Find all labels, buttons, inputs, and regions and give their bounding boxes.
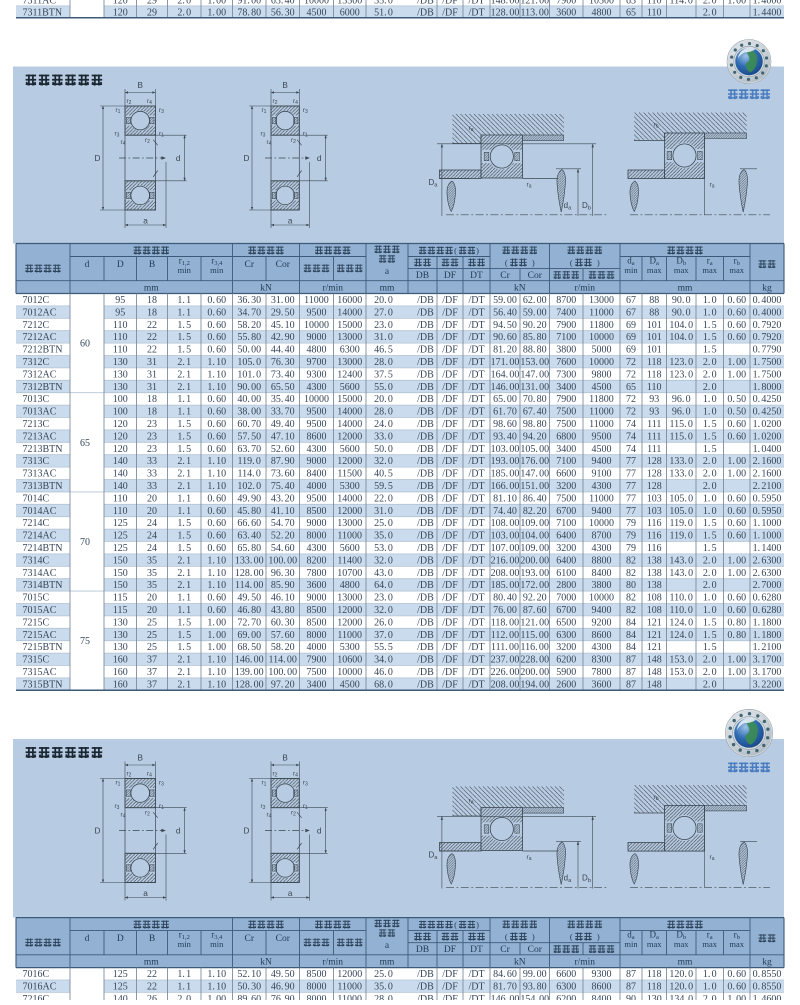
svg-text:6700: 6700 xyxy=(556,506,576,517)
svg-text:/DT: /DT xyxy=(468,543,484,554)
svg-text:(: ( xyxy=(454,245,457,255)
svg-text:100: 100 xyxy=(113,407,128,418)
svg-text:1. 5: 1. 5 xyxy=(177,332,191,343)
svg-text:6800: 6800 xyxy=(556,431,576,442)
svg-text:11800: 11800 xyxy=(589,320,614,331)
svg-text:0. 80: 0. 80 xyxy=(727,617,746,628)
svg-text:/DT: /DT xyxy=(468,518,484,529)
svg-text:1. 10: 1. 10 xyxy=(207,969,226,980)
svg-text:/DB: /DB xyxy=(417,481,434,492)
svg-text:8500: 8500 xyxy=(307,605,327,616)
svg-text:1. 0: 1. 0 xyxy=(703,493,717,504)
svg-text:7213C: 7213C xyxy=(23,419,50,430)
svg-text:9500: 9500 xyxy=(592,431,612,442)
svg-text:123. 0: 123. 0 xyxy=(669,369,693,380)
svg-text:125: 125 xyxy=(113,531,128,542)
svg-text:2. 1: 2. 1 xyxy=(177,456,191,467)
svg-text:67: 67 xyxy=(626,295,636,306)
svg-text:94. 20: 94. 20 xyxy=(523,431,547,442)
svg-text:104. 0: 104. 0 xyxy=(669,320,693,331)
svg-text:68. 50: 68. 50 xyxy=(237,642,261,653)
svg-text:130: 130 xyxy=(113,357,128,368)
svg-text:mm: mm xyxy=(380,284,395,294)
svg-text:2. 0: 2. 0 xyxy=(703,655,717,666)
svg-text:2. 1: 2. 1 xyxy=(177,568,191,579)
svg-text:12000: 12000 xyxy=(337,969,362,980)
svg-text:64. 0: 64. 0 xyxy=(374,580,393,591)
svg-text:r2: r2 xyxy=(145,137,150,145)
svg-text:9400: 9400 xyxy=(592,506,612,517)
svg-text:12000: 12000 xyxy=(337,431,362,442)
svg-text:/DF: /DF xyxy=(442,568,458,579)
svg-text:84: 84 xyxy=(626,630,636,641)
svg-text:108: 108 xyxy=(647,593,662,604)
svg-text:1. 00: 1. 00 xyxy=(727,655,746,666)
svg-text:121. 00: 121. 00 xyxy=(520,0,549,7)
svg-text:54. 70: 54. 70 xyxy=(271,518,295,529)
svg-text:153. 0: 153. 0 xyxy=(669,655,693,666)
svg-text:0. 8550: 0. 8550 xyxy=(753,969,782,980)
svg-text:9500: 9500 xyxy=(307,407,327,418)
svg-text:r4: r4 xyxy=(147,98,152,106)
svg-text:10000: 10000 xyxy=(589,357,614,368)
svg-text:128. 00: 128. 00 xyxy=(235,568,264,579)
svg-text:18: 18 xyxy=(147,307,157,318)
svg-text:185. 00: 185. 00 xyxy=(491,580,520,591)
svg-text:110: 110 xyxy=(113,332,128,343)
svg-text:200. 00: 200. 00 xyxy=(520,667,549,678)
svg-text:9300: 9300 xyxy=(307,369,327,380)
svg-text:/DB: /DB xyxy=(417,0,434,7)
svg-text:3600: 3600 xyxy=(592,679,612,690)
svg-text:208. 00: 208. 00 xyxy=(491,679,520,690)
svg-text:95: 95 xyxy=(115,307,125,318)
svg-text:120: 120 xyxy=(113,444,128,455)
svg-text:33: 33 xyxy=(147,469,157,480)
svg-text:0. 7790: 0. 7790 xyxy=(753,345,782,356)
svg-text:99. 00: 99. 00 xyxy=(523,969,547,980)
svg-text:/DT: /DT xyxy=(468,655,484,666)
svg-text:1. 0: 1. 0 xyxy=(703,969,717,980)
svg-text:140: 140 xyxy=(113,469,128,480)
svg-text:12400: 12400 xyxy=(337,369,362,380)
svg-text:4500: 4500 xyxy=(592,444,612,455)
svg-text:77: 77 xyxy=(626,469,636,480)
svg-text:72: 72 xyxy=(626,394,636,405)
svg-text:56. 40: 56. 40 xyxy=(493,307,517,318)
svg-text:mm: mm xyxy=(144,958,159,968)
svg-text:5000: 5000 xyxy=(592,345,612,356)
svg-text:2. 1: 2. 1 xyxy=(177,469,191,480)
svg-text:r1: r1 xyxy=(303,131,308,139)
svg-text:237. 00: 237. 00 xyxy=(491,655,520,666)
svg-text:/DT: /DT xyxy=(468,593,484,604)
svg-text:/DF: /DF xyxy=(442,655,458,666)
svg-text:4500: 4500 xyxy=(340,679,360,690)
svg-text:kg: kg xyxy=(762,284,772,294)
svg-text:D: D xyxy=(244,827,250,836)
svg-text:/DB: /DB xyxy=(417,580,434,591)
svg-text:118: 118 xyxy=(647,981,662,992)
svg-text:116: 116 xyxy=(647,531,662,542)
svg-text:50. 30: 50. 30 xyxy=(237,981,261,992)
svg-text:93. 80: 93. 80 xyxy=(523,981,547,992)
svg-text:0. 50: 0. 50 xyxy=(727,394,746,405)
svg-text:1. 4600: 1. 4600 xyxy=(753,994,782,1000)
svg-text:82: 82 xyxy=(626,605,636,616)
svg-text:216. 00: 216. 00 xyxy=(491,555,520,566)
svg-text:/DB: /DB xyxy=(417,407,434,418)
svg-text:a: a xyxy=(143,889,148,898)
svg-text:/DF: /DF xyxy=(442,407,458,418)
svg-text:/DB: /DB xyxy=(417,667,434,678)
svg-text:25. 0: 25. 0 xyxy=(374,518,393,529)
svg-text:111: 111 xyxy=(647,419,661,430)
svg-text:93. 40: 93. 40 xyxy=(493,431,517,442)
svg-text:50. 00: 50. 00 xyxy=(237,345,261,356)
svg-text:110: 110 xyxy=(113,345,128,356)
svg-text:4800: 4800 xyxy=(307,345,327,356)
svg-text:147. 00: 147. 00 xyxy=(520,369,549,380)
svg-text:115. 00: 115. 00 xyxy=(521,630,549,641)
svg-text:7015AC: 7015AC xyxy=(23,605,57,616)
svg-text:r3: r3 xyxy=(261,131,266,139)
svg-text:8700: 8700 xyxy=(592,531,612,542)
svg-text:35. 0: 35. 0 xyxy=(374,531,393,542)
svg-text:32. 0: 32. 0 xyxy=(374,605,393,616)
svg-text:1. 5: 1. 5 xyxy=(177,617,191,628)
svg-text:d: d xyxy=(176,827,181,836)
svg-text:1. 0: 1. 0 xyxy=(703,981,717,992)
svg-text:1. 5: 1. 5 xyxy=(177,444,191,455)
svg-text:1. 8000: 1. 8000 xyxy=(753,382,782,393)
svg-text:143. 0: 143. 0 xyxy=(669,555,693,566)
svg-text:2. 1600: 2. 1600 xyxy=(753,456,782,467)
svg-text:r3: r3 xyxy=(115,803,120,811)
svg-text:61. 70: 61. 70 xyxy=(493,407,517,418)
svg-text:max: max xyxy=(729,265,744,275)
svg-text:87: 87 xyxy=(626,981,636,992)
svg-text:7012C: 7012C xyxy=(23,295,50,306)
svg-text:35: 35 xyxy=(147,568,157,579)
svg-text:9000: 9000 xyxy=(307,332,327,343)
svg-text:min: min xyxy=(210,939,224,949)
svg-text:12000: 12000 xyxy=(337,605,362,616)
svg-text:1. 5: 1. 5 xyxy=(703,332,717,343)
svg-text:24: 24 xyxy=(147,531,157,542)
svg-text:/DT: /DT xyxy=(468,444,484,455)
svg-text:63. 40: 63. 40 xyxy=(271,0,295,7)
svg-text:84. 60: 84. 60 xyxy=(493,969,517,980)
svg-text:2. 1: 2. 1 xyxy=(177,667,191,678)
svg-text:1. 00: 1. 00 xyxy=(207,0,226,7)
svg-text:3. 1700: 3. 1700 xyxy=(753,667,782,678)
svg-text:18: 18 xyxy=(147,407,157,418)
svg-text:7311BTN: 7311BTN xyxy=(23,7,63,18)
svg-text:0. 5950: 0. 5950 xyxy=(753,506,782,517)
svg-text:1. 5: 1. 5 xyxy=(177,543,191,554)
svg-text:90. 0: 90. 0 xyxy=(672,295,691,306)
svg-text:115. 0: 115. 0 xyxy=(670,419,693,430)
svg-text:mm: mm xyxy=(678,958,693,968)
svg-text:6600: 6600 xyxy=(556,969,576,980)
svg-text:/DF: /DF xyxy=(442,969,458,980)
svg-text:23. 0: 23. 0 xyxy=(374,320,393,331)
svg-text:171. 00: 171. 00 xyxy=(491,357,520,368)
svg-text:0. 60: 0. 60 xyxy=(207,593,226,604)
svg-text:154. 00: 154. 00 xyxy=(520,994,549,1000)
svg-text:108. 00: 108. 00 xyxy=(491,518,520,529)
svg-text:1. 00: 1. 00 xyxy=(207,630,226,641)
svg-text:18: 18 xyxy=(147,295,157,306)
svg-text:94. 50: 94. 50 xyxy=(493,320,517,331)
svg-text:140: 140 xyxy=(113,456,128,467)
svg-text:/DB: /DB xyxy=(417,642,434,653)
svg-text:20: 20 xyxy=(147,593,157,604)
svg-text:6000: 6000 xyxy=(340,7,360,18)
svg-text:/DB: /DB xyxy=(417,493,434,504)
svg-text:2. 0: 2. 0 xyxy=(703,469,717,480)
svg-text:28. 0: 28. 0 xyxy=(374,407,393,418)
svg-text:/DT: /DT xyxy=(468,994,484,1000)
svg-text:1. 4000: 1. 4000 xyxy=(753,0,782,7)
svg-text:1. 10: 1. 10 xyxy=(207,357,226,368)
svg-text:8200: 8200 xyxy=(307,555,327,566)
svg-text:118: 118 xyxy=(647,357,662,368)
svg-text:DB: DB xyxy=(416,945,429,955)
svg-text:1. 10: 1. 10 xyxy=(207,369,226,380)
svg-text:2. 0: 2. 0 xyxy=(703,357,717,368)
svg-text:11000: 11000 xyxy=(337,994,362,1000)
svg-text:35: 35 xyxy=(147,555,157,566)
svg-text:128. 00: 128. 00 xyxy=(491,7,520,18)
svg-text:28. 0: 28. 0 xyxy=(374,994,393,1000)
svg-text:1. 00: 1. 00 xyxy=(727,994,746,1000)
svg-text:65: 65 xyxy=(80,438,90,449)
svg-text:/DT: /DT xyxy=(468,679,484,690)
svg-text:rb: rb xyxy=(654,794,659,802)
svg-text:0. 60: 0. 60 xyxy=(207,531,226,542)
svg-text:/DF: /DF xyxy=(442,506,458,517)
svg-text:111: 111 xyxy=(647,431,661,442)
svg-text:107. 00: 107. 00 xyxy=(491,543,520,554)
svg-text:1. 5: 1. 5 xyxy=(703,630,717,641)
svg-text:12000: 12000 xyxy=(337,506,362,517)
svg-text:82: 82 xyxy=(626,568,636,579)
svg-text:5600: 5600 xyxy=(340,382,360,393)
svg-text:7314BTN: 7314BTN xyxy=(23,580,63,591)
svg-text:7016C: 7016C xyxy=(23,969,50,980)
svg-text:8300: 8300 xyxy=(592,655,612,666)
svg-text:46. 90: 46. 90 xyxy=(271,981,295,992)
svg-text:7313C: 7313C xyxy=(23,456,50,467)
svg-text:/DB: /DB xyxy=(417,593,434,604)
svg-text:7800: 7800 xyxy=(307,568,327,579)
svg-text:r1: r1 xyxy=(303,803,308,811)
svg-text:80: 80 xyxy=(626,580,636,591)
svg-text:/DT: /DT xyxy=(468,369,484,380)
svg-text:min: min xyxy=(178,265,192,275)
svg-text:65. 80: 65. 80 xyxy=(237,543,261,554)
svg-text:114. 0: 114. 0 xyxy=(670,0,693,7)
svg-text:r4: r4 xyxy=(267,139,272,147)
svg-text:7216C: 7216C xyxy=(23,994,50,1000)
svg-text:87: 87 xyxy=(626,667,636,678)
svg-text:0. 60: 0. 60 xyxy=(207,506,226,517)
svg-text:/DF: /DF xyxy=(442,580,458,591)
svg-text:85. 80: 85. 80 xyxy=(523,332,547,343)
svg-text:2. 1: 2. 1 xyxy=(177,382,191,393)
svg-text:88: 88 xyxy=(649,295,659,306)
svg-text:/DF: /DF xyxy=(442,456,458,467)
svg-text:148: 148 xyxy=(647,655,662,666)
svg-text:/DT: /DT xyxy=(468,357,484,368)
svg-text:5600: 5600 xyxy=(340,444,360,455)
svg-text:7014AC: 7014AC xyxy=(23,506,57,517)
svg-text:2. 0: 2. 0 xyxy=(703,555,717,566)
svg-text:1. 1: 1. 1 xyxy=(177,394,191,405)
svg-text:mm: mm xyxy=(678,284,693,294)
svg-text:r2: r2 xyxy=(273,771,278,779)
svg-text:118. 00: 118. 00 xyxy=(491,617,519,628)
svg-text:52. 60: 52. 60 xyxy=(271,444,295,455)
svg-text:146. 00: 146. 00 xyxy=(491,994,520,1000)
svg-text:r3: r3 xyxy=(159,780,164,788)
svg-text:55. 80: 55. 80 xyxy=(237,332,261,343)
svg-text:6300: 6300 xyxy=(556,630,576,641)
svg-text:1. 10: 1. 10 xyxy=(207,667,226,678)
svg-text:8400: 8400 xyxy=(307,469,327,480)
svg-text:4300: 4300 xyxy=(307,382,327,393)
svg-text:14000: 14000 xyxy=(337,407,362,418)
svg-text:114. 00: 114. 00 xyxy=(235,580,263,591)
svg-text:1. 2100: 1. 2100 xyxy=(753,642,782,653)
svg-text:/DB: /DB xyxy=(417,320,434,331)
svg-text:3200: 3200 xyxy=(556,642,576,653)
svg-text:rb: rb xyxy=(654,122,659,130)
svg-text:1. 0200: 1. 0200 xyxy=(753,431,782,442)
svg-text:29. 50: 29. 50 xyxy=(271,307,295,318)
svg-text:/DF: /DF xyxy=(442,444,458,455)
svg-text:/DF: /DF xyxy=(442,295,458,306)
svg-text:2. 0: 2. 0 xyxy=(703,456,717,467)
svg-text:18: 18 xyxy=(147,394,157,405)
svg-text:46. 0: 46. 0 xyxy=(374,667,393,678)
svg-text:(: ( xyxy=(454,919,457,929)
svg-text:/DT: /DT xyxy=(468,345,484,356)
svg-text:20. 0: 20. 0 xyxy=(374,295,393,306)
svg-text:146. 00: 146. 00 xyxy=(491,382,520,393)
svg-text:Cor: Cor xyxy=(276,934,291,944)
svg-text:130: 130 xyxy=(113,382,128,393)
svg-text:11800: 11800 xyxy=(589,394,614,405)
svg-text:67: 67 xyxy=(626,307,636,318)
svg-text:/DT: /DT xyxy=(468,332,484,343)
svg-text:a: a xyxy=(288,217,293,226)
svg-text:9400: 9400 xyxy=(592,605,612,616)
svg-text:105. 00: 105. 00 xyxy=(520,444,549,455)
svg-text:82. 20: 82. 20 xyxy=(523,506,547,517)
svg-text:7000: 7000 xyxy=(556,593,576,604)
svg-text:): ) xyxy=(476,919,479,929)
svg-text:r4: r4 xyxy=(267,812,272,820)
svg-text:7500: 7500 xyxy=(556,407,576,418)
svg-text:DF: DF xyxy=(444,945,456,955)
svg-text:2. 0: 2. 0 xyxy=(703,568,717,579)
svg-text:33: 33 xyxy=(147,481,157,492)
svg-text:50. 0: 50. 0 xyxy=(374,444,393,455)
svg-text:d: d xyxy=(85,934,90,944)
svg-text:120: 120 xyxy=(113,7,128,18)
svg-text:/DT: /DT xyxy=(468,555,484,566)
svg-text:11500: 11500 xyxy=(337,469,362,480)
svg-text:11000: 11000 xyxy=(589,493,614,504)
svg-text:114. 0: 114. 0 xyxy=(238,469,261,480)
svg-text:1. 10: 1. 10 xyxy=(207,382,226,393)
svg-text:7015C: 7015C xyxy=(23,593,50,604)
svg-text:10000: 10000 xyxy=(304,0,329,7)
svg-text:0. 60: 0. 60 xyxy=(727,332,746,343)
svg-text:1. 5: 1. 5 xyxy=(703,345,717,356)
svg-text:/DF: /DF xyxy=(442,307,458,318)
svg-text:1. 5: 1. 5 xyxy=(177,320,191,331)
svg-text:4500: 4500 xyxy=(592,382,612,393)
svg-text:/DF: /DF xyxy=(442,593,458,604)
svg-text:0. 60: 0. 60 xyxy=(207,345,226,356)
svg-text:6400: 6400 xyxy=(556,555,576,566)
svg-text:8800: 8800 xyxy=(592,555,612,566)
svg-text:20: 20 xyxy=(147,605,157,616)
svg-text:1. 0: 1. 0 xyxy=(703,593,717,604)
svg-text:r/min: r/min xyxy=(574,958,595,968)
svg-text:7313BTN: 7313BTN xyxy=(23,481,63,492)
svg-text:100: 100 xyxy=(113,394,128,405)
svg-text:7312AC: 7312AC xyxy=(23,369,57,380)
svg-text:8400: 8400 xyxy=(592,994,612,1000)
svg-text:22: 22 xyxy=(147,981,157,992)
svg-text:1. 5: 1. 5 xyxy=(703,543,717,554)
svg-text:112. 00: 112. 00 xyxy=(491,630,519,641)
svg-text:a: a xyxy=(143,217,148,226)
svg-text:90. 20: 90. 20 xyxy=(523,320,547,331)
svg-text:75. 40: 75. 40 xyxy=(271,481,295,492)
svg-text:0. 8550: 0. 8550 xyxy=(753,981,782,992)
svg-text:10600: 10600 xyxy=(337,655,362,666)
svg-text:226. 00: 226. 00 xyxy=(491,667,520,678)
svg-text:/DT: /DT xyxy=(468,506,484,517)
svg-text:33: 33 xyxy=(147,456,157,467)
svg-text:ra: ra xyxy=(527,182,532,190)
svg-text:/DF: /DF xyxy=(442,555,458,566)
svg-text:1. 5: 1. 5 xyxy=(703,518,717,529)
svg-text:151. 00: 151. 00 xyxy=(520,481,549,492)
svg-text:10500: 10500 xyxy=(589,0,614,7)
svg-text:101. 0: 101. 0 xyxy=(237,369,261,380)
svg-text:1. 10: 1. 10 xyxy=(207,679,226,690)
svg-text:1. 00: 1. 00 xyxy=(727,469,746,480)
svg-text:3. 2200: 3. 2200 xyxy=(753,679,782,690)
svg-text:100. 00: 100. 00 xyxy=(268,667,297,678)
svg-text:/DT: /DT xyxy=(468,382,484,393)
svg-text:/DF: /DF xyxy=(442,518,458,529)
svg-text:ra: ra xyxy=(710,854,715,862)
svg-text:176. 00: 176. 00 xyxy=(520,456,549,467)
svg-text:0. 4000: 0. 4000 xyxy=(753,295,782,306)
svg-text:B: B xyxy=(137,81,143,90)
svg-text:max: max xyxy=(674,265,689,275)
svg-text:11000: 11000 xyxy=(337,630,362,641)
svg-text:(: ( xyxy=(505,257,508,267)
